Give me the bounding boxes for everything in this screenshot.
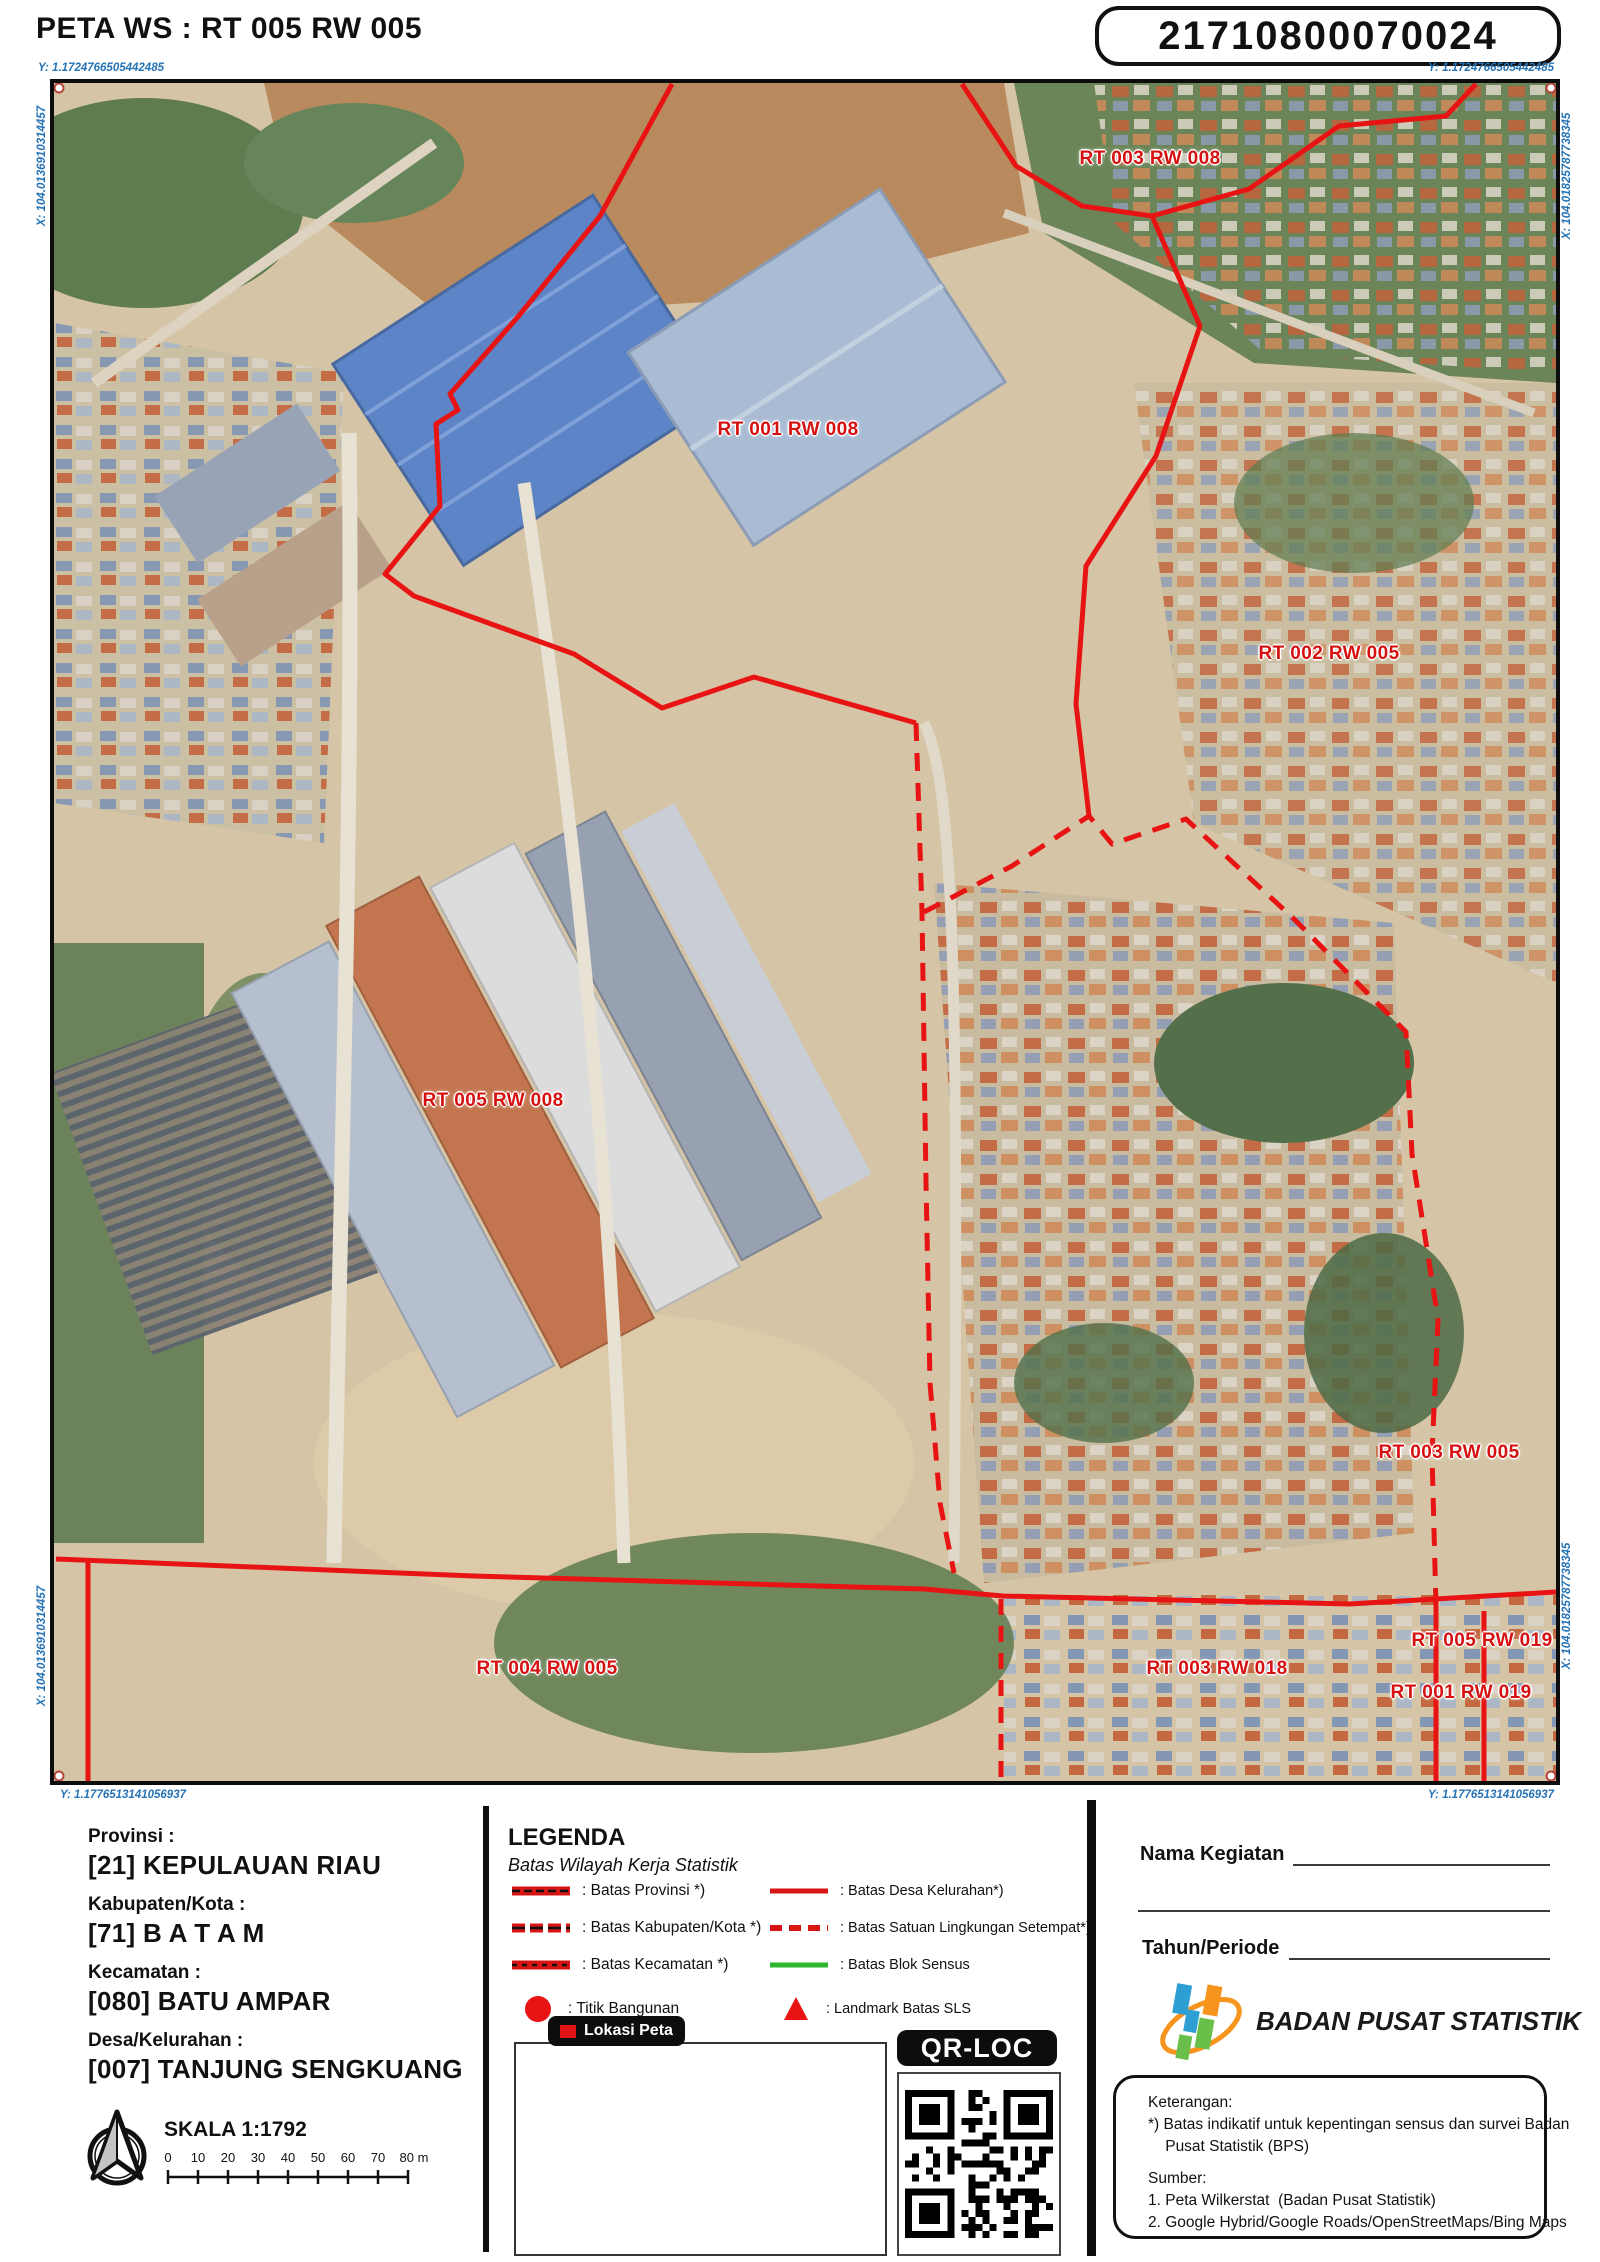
legend-title: LEGENDA [508, 1824, 625, 1852]
map-id-box: 21710800070024 [1095, 6, 1561, 66]
map-label-rt002rw005: RT 002 RW 005 [1258, 643, 1399, 665]
tahun-periode-label: Tahun/Periode [1142, 1937, 1279, 1960]
divider-left [483, 1806, 489, 2252]
scale-tick-5: 50 [311, 2150, 325, 2165]
scale-tick-0: 0 [164, 2150, 171, 2165]
batas-kecamatan-symbol [510, 1956, 572, 1974]
desa-value: [007] TANJUNG SENGKUANG [88, 2054, 463, 2085]
batas-desa-symbol [768, 1882, 830, 1900]
coord-right-x-top: X: 104.01825787738345 [1561, 91, 1573, 261]
coord-right-x-bottom: X: 104.01825787738345 [1561, 1521, 1573, 1691]
scale-tick-4: 40 [281, 2150, 295, 2165]
nama-kegiatan-row: Nama Kegiatan [1140, 1840, 1550, 1866]
keterangan-box: Keterangan: *) Batas indikatif untuk kep… [1113, 2075, 1547, 2239]
scale-tick-3: 30 [251, 2150, 265, 2165]
coord-left-x-top: X: 104.0136910314457 [36, 86, 48, 246]
scale-tick-7: 70 [371, 2150, 385, 2165]
bps-name: BADAN PUSAT STATISTIK [1256, 2006, 1581, 2037]
map-label-rt003rw005: RT 003 RW 005 [1378, 1442, 1519, 1464]
desa-label: Desa/Kelurahan : [88, 2030, 243, 2052]
legend-label: : Batas Kabupaten/Kota *) [582, 1919, 761, 1937]
qr-loc-label: QR-LOC [921, 2033, 1033, 2064]
batas-sls-symbol [768, 1919, 830, 1937]
map-label-rt005rw019: RT 005 RW 019 [1411, 1630, 1552, 1652]
legend-item-batas-sls: : Batas Satuan Lingkungan Setempat*) [768, 1919, 1091, 1937]
keterangan-note1: *) Batas indikatif untuk kepentingan sen… [1148, 2114, 1544, 2136]
coord-left-x-bottom: X: 104.0136910314457 [36, 1566, 48, 1726]
legend-item-batas-provinsi: : Batas Provinsi *) [510, 1882, 705, 1900]
keterangan-note2: Pusat Statistik (BPS) [1148, 2136, 1544, 2158]
legend-label: : Batas Kecamatan *) [582, 1956, 728, 1974]
legend-item-batas-kabupaten: : Batas Kabupaten/Kota *) [510, 1919, 761, 1937]
batas-provinsi-symbol [510, 1882, 572, 1900]
map-label-rt004rw005: RT 004 RW 005 [476, 1658, 617, 1680]
tahun-periode-row: Tahun/Periode [1142, 1934, 1550, 1960]
keterangan-title: Keterangan: [1148, 2092, 1544, 2114]
provinsi-value: [21] KEPULAUAN RIAU [88, 1850, 381, 1881]
qr-loc-header: QR-LOC [897, 2030, 1057, 2066]
kecamatan-label: Kecamatan : [88, 1962, 201, 1984]
legend-label: : Batas Desa Kelurahan*) [840, 1883, 1004, 1899]
legend-label: : Batas Blok Sensus [840, 1957, 970, 1973]
batas-kabupaten-symbol [510, 1919, 572, 1937]
coord-top-right-y: Y: 1.1724766505442485 [1428, 62, 1554, 74]
map-label-rt003rw008: RT 003 RW 008 [1079, 148, 1220, 170]
nama-kegiatan-line2 [1138, 1888, 1550, 1912]
kabupaten-value: [71] B A T A M [88, 1918, 265, 1949]
map-label-rt001rw008: RT 001 RW 008 [717, 419, 858, 441]
nama-kegiatan-label: Nama Kegiatan [1140, 1843, 1285, 1866]
page-title: PETA WS : RT 005 RW 005 [36, 12, 422, 46]
coord-bottom-right-y: Y: 1.1776513141056937 [1428, 1789, 1554, 1801]
legend-item-batas-desa: : Batas Desa Kelurahan*) [768, 1882, 1004, 1900]
scale-tick-1: 10 [191, 2150, 205, 2165]
compass-icon [78, 2106, 156, 2198]
sumber-2: 2. Google Hybrid/Google Roads/OpenStreet… [1148, 2212, 1544, 2234]
map-id: 21710800070024 [1158, 14, 1497, 59]
nama-kegiatan-line [1293, 1840, 1551, 1866]
coord-bottom-left-y: Y: 1.1776513141056937 [60, 1789, 186, 1801]
kabupaten-label: Kabupaten/Kota : [88, 1894, 245, 1916]
map-label-rt001rw019: RT 001 RW 019 [1390, 1682, 1531, 1704]
scale-tick-6: 60 [341, 2150, 355, 2165]
scale-bar: 0 10 20 30 40 50 60 70 80 m [160, 2150, 430, 2190]
map-label-rt003rw018: RT 003 RW 018 [1146, 1658, 1287, 1680]
peta-ws-document: { "header": { "title": "PETA WS : RT 005… [0, 0, 1600, 2262]
sumber-title: Sumber: [1148, 2168, 1544, 2190]
qr-code [905, 2090, 1053, 2238]
legend-label: : Batas Satuan Lingkungan Setempat*) [840, 1920, 1091, 1936]
legend-label: : Landmark Batas SLS [826, 2001, 971, 2017]
divider-right [1087, 1800, 1096, 2256]
tahun-periode-line [1289, 1934, 1550, 1960]
scale-tick-8: 80 m [400, 2150, 429, 2165]
kecamatan-value: [080] BATU AMPAR [88, 1986, 331, 2017]
batas-blok-symbol [768, 1956, 830, 1974]
bps-logo [1155, 1982, 1250, 2064]
terrain-art [54, 83, 1556, 1781]
qr-code-box [897, 2072, 1061, 2256]
legend-item-batas-blok: : Batas Blok Sensus [768, 1956, 970, 1974]
legend-item-landmark-sls: : Landmark Batas SLS [776, 1994, 971, 2024]
map-label-rt005rw008: RT 005 RW 008 [422, 1090, 563, 1112]
legend-subtitle: Batas Wilayah Kerja Statistik [508, 1855, 738, 1876]
provinsi-label: Provinsi : [88, 1826, 175, 1848]
lokasi-peta-marker [560, 2025, 576, 2038]
lokasi-peta-box [514, 2042, 887, 2256]
satellite-imagery [54, 83, 1556, 1781]
scale-label: SKALA 1:1792 [164, 2118, 307, 2142]
legend-item-batas-kecamatan: : Batas Kecamatan *) [510, 1956, 728, 1974]
lokasi-peta-label: Lokasi Peta [584, 2022, 673, 2040]
legend-label: : Batas Provinsi *) [582, 1882, 705, 1900]
map-canvas: RT 003 RW 008 RT 001 RW 008 RT 002 RW 00… [50, 79, 1560, 1785]
coord-top-left-y: Y: 1.1724766505442485 [38, 62, 164, 74]
lokasi-peta-tag: Lokasi Peta [548, 2016, 685, 2046]
landmark-sls-symbol [776, 1994, 816, 2024]
scale-tick-2: 20 [221, 2150, 235, 2165]
sumber-1: 1. Peta Wilkerstat (Badan Pusat Statisti… [1148, 2190, 1544, 2212]
